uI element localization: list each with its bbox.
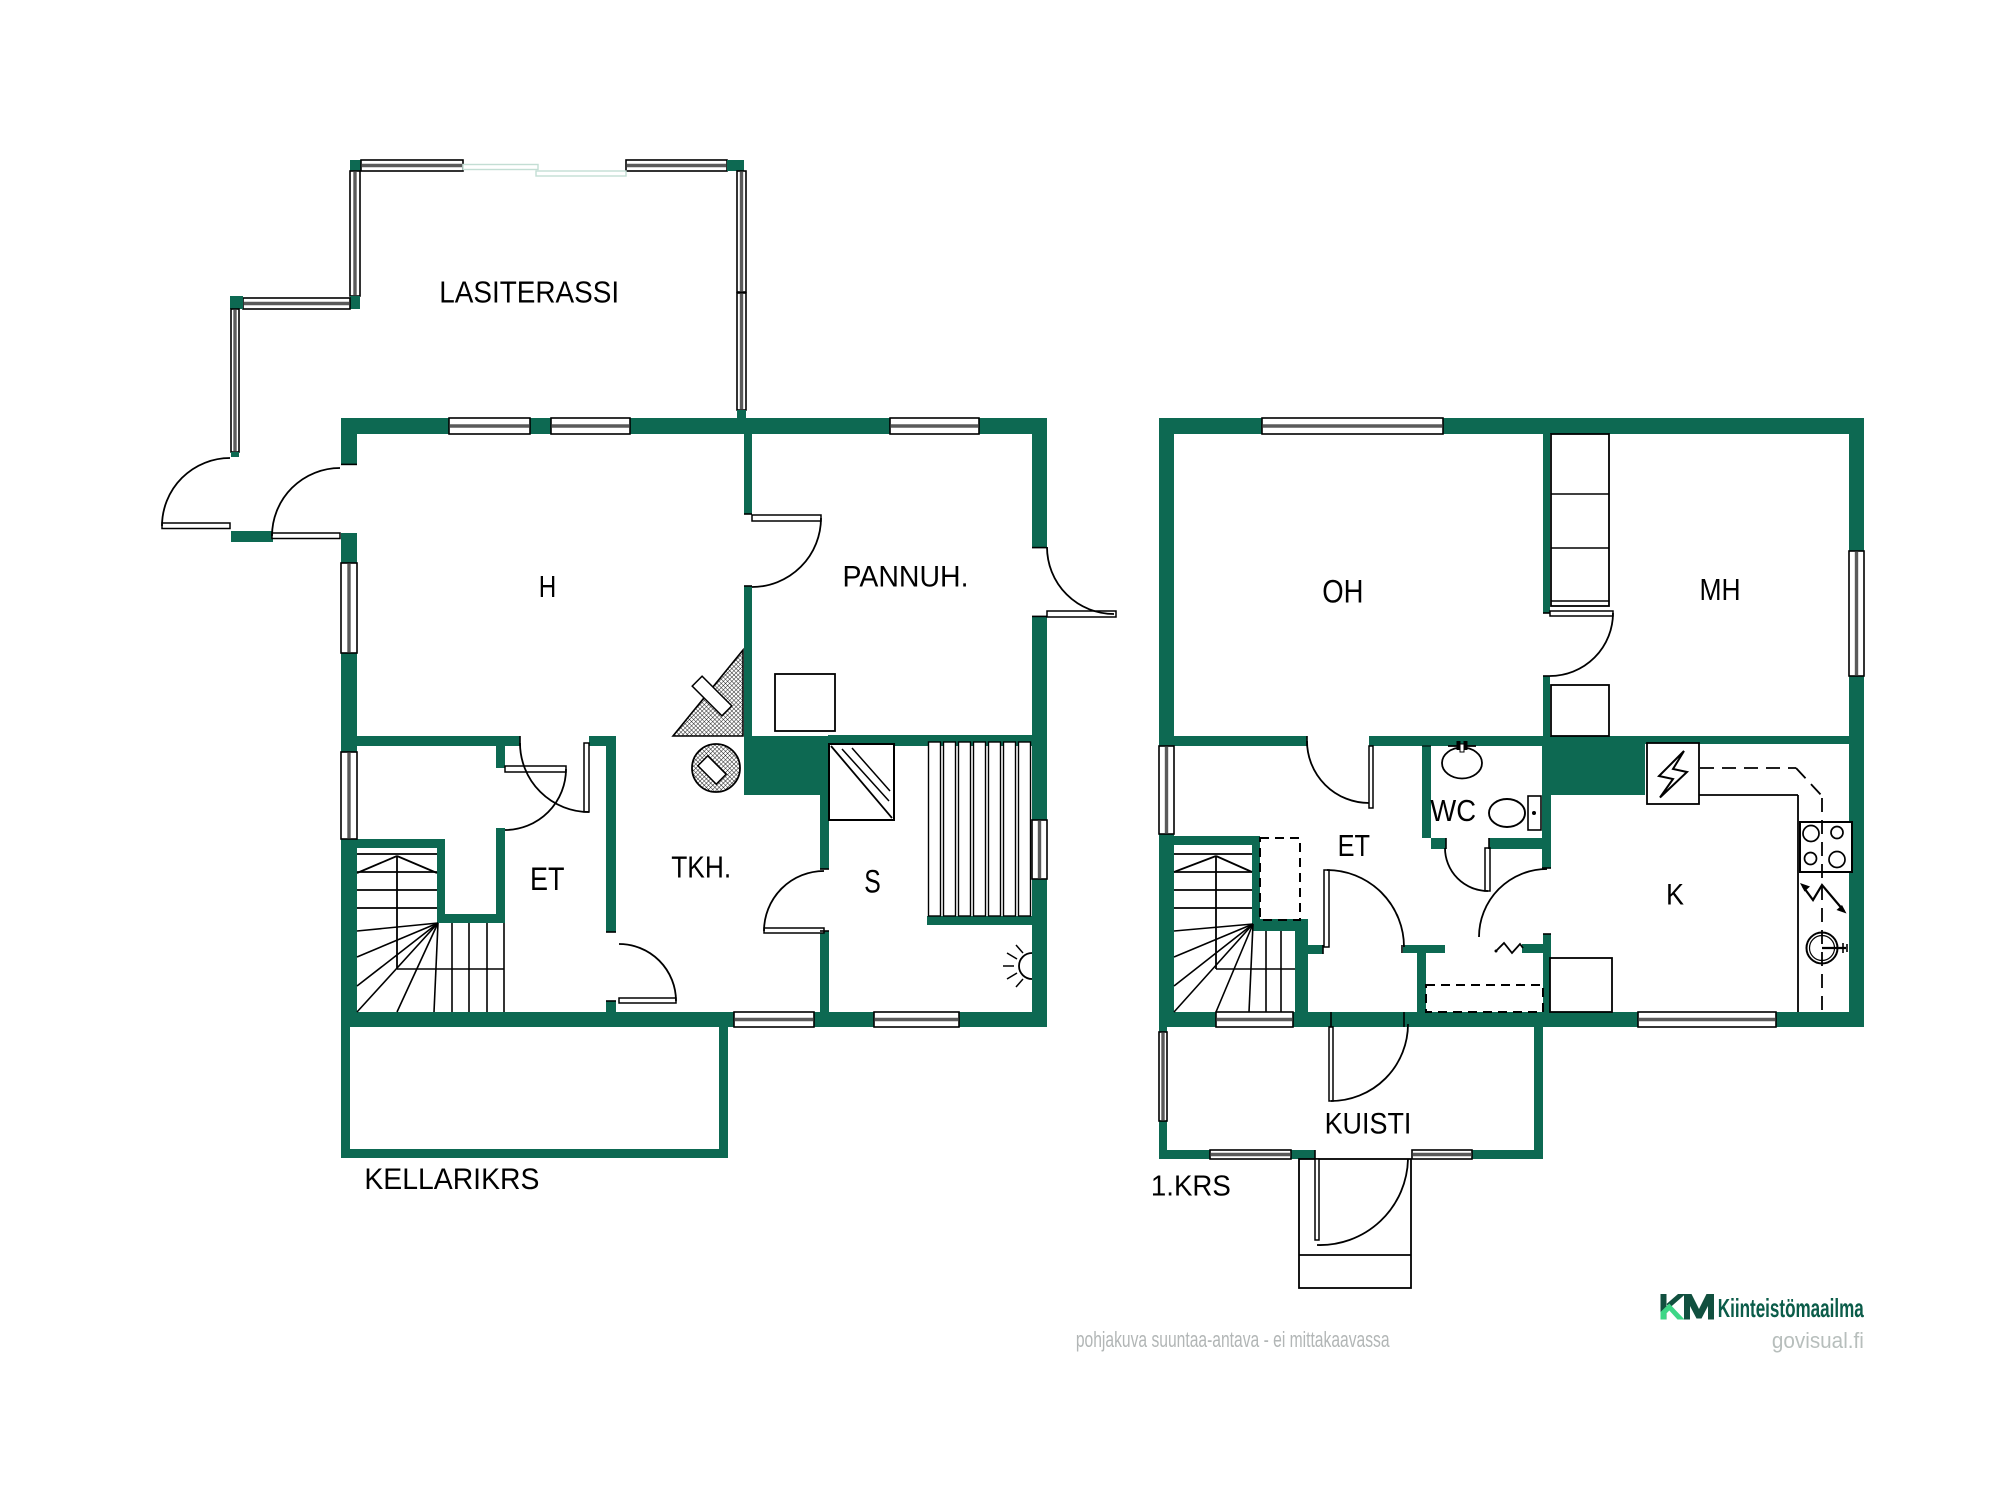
svg-text:KELLARIKRS: KELLARIKRS: [364, 1163, 539, 1196]
svg-text:Kiinteistömaailma: Kiinteistömaailma: [1718, 1293, 1864, 1323]
svg-text:OH: OH: [1322, 572, 1363, 609]
svg-text:ET: ET: [530, 861, 565, 897]
svg-text:PANNUH.: PANNUH.: [843, 561, 969, 594]
svg-text:TKH.: TKH.: [671, 851, 731, 885]
svg-text:pohjakuva suuntaa-antava - ei: pohjakuva suuntaa-antava - ei mittakaava…: [1076, 1327, 1390, 1352]
svg-text:govisual.fi: govisual.fi: [1772, 1328, 1864, 1353]
svg-text:S: S: [864, 864, 881, 900]
svg-text:ET: ET: [1338, 828, 1370, 863]
svg-text:WC: WC: [1430, 793, 1476, 828]
svg-text:KUISTI: KUISTI: [1325, 1107, 1412, 1140]
svg-text:LASITERASSI: LASITERASSI: [439, 274, 619, 309]
svg-text:H: H: [539, 569, 557, 604]
svg-text:MH: MH: [1699, 572, 1740, 607]
svg-text:1.KRS: 1.KRS: [1151, 1170, 1231, 1202]
svg-text:K: K: [1666, 879, 1684, 912]
